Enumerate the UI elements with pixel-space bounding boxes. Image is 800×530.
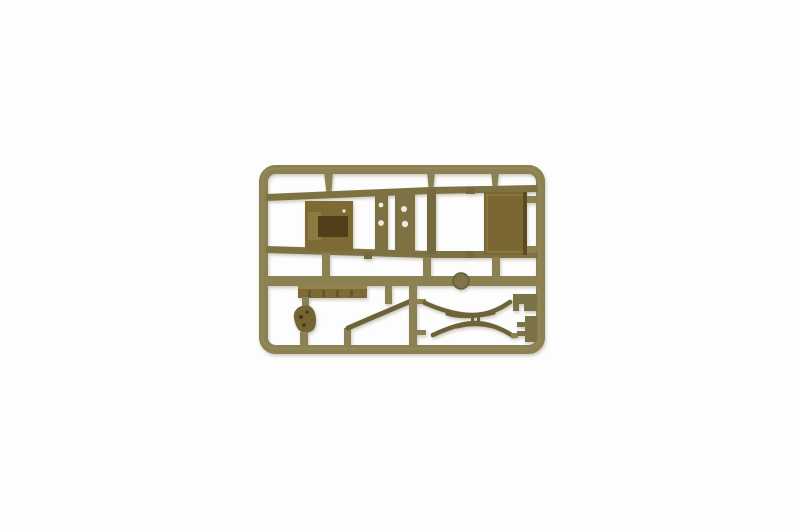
bumper-highlight	[298, 286, 367, 289]
skid-plate-panel	[305, 201, 353, 251]
skid-plate-hole	[342, 209, 345, 212]
drive-shaft-gate-top	[385, 286, 392, 304]
bumper-tick	[350, 290, 353, 297]
cargo-floor-face	[484, 192, 527, 255]
bumper-tick	[336, 290, 339, 297]
sprue-photo	[0, 0, 800, 530]
transfer-case-detail	[305, 310, 308, 313]
chassis-bracket-tab	[466, 251, 474, 258]
sprue-gate-mid-middle	[423, 257, 431, 277]
round-disc-part	[453, 273, 469, 289]
photo-canvas	[0, 0, 800, 530]
drive-shaft-gate-left	[344, 328, 351, 346]
upper-spring-eye	[508, 300, 513, 305]
vertical-runner	[409, 286, 417, 347]
crossmember-hole	[379, 203, 384, 208]
lower-spring-gate-left	[417, 330, 426, 335]
spring-connector	[471, 314, 474, 324]
transfer-case-detail	[302, 323, 306, 327]
skid-plate-recess	[318, 216, 348, 237]
spring-connector	[477, 314, 480, 324]
transfer-case-detail	[299, 315, 303, 319]
spring-bracket-upper	[513, 294, 537, 311]
cargo-floor-gate-top	[527, 196, 537, 203]
upper-spring-eye	[423, 301, 428, 306]
crossmember-hole	[378, 220, 384, 226]
photo-background	[0, 0, 800, 530]
sprue-gate-mid-left	[322, 253, 330, 277]
lower-spring-gate-right	[511, 333, 518, 338]
transfer-case-gate-bottom	[300, 332, 308, 346]
chassis-bracket-tab	[466, 187, 475, 194]
bumper-tick	[308, 290, 311, 297]
sprue-gate-mid-right	[492, 257, 500, 277]
bumper-tick	[322, 290, 325, 297]
cargo-floor-gate-bottom	[527, 246, 537, 253]
chassis-crossmember-3	[427, 189, 436, 254]
crossmember-hole	[401, 206, 407, 212]
lower-spring-eye	[431, 333, 436, 338]
chassis-bracket-tab	[364, 252, 372, 259]
crossmember-hole	[402, 221, 408, 227]
cargo-floor-edge	[523, 192, 527, 255]
